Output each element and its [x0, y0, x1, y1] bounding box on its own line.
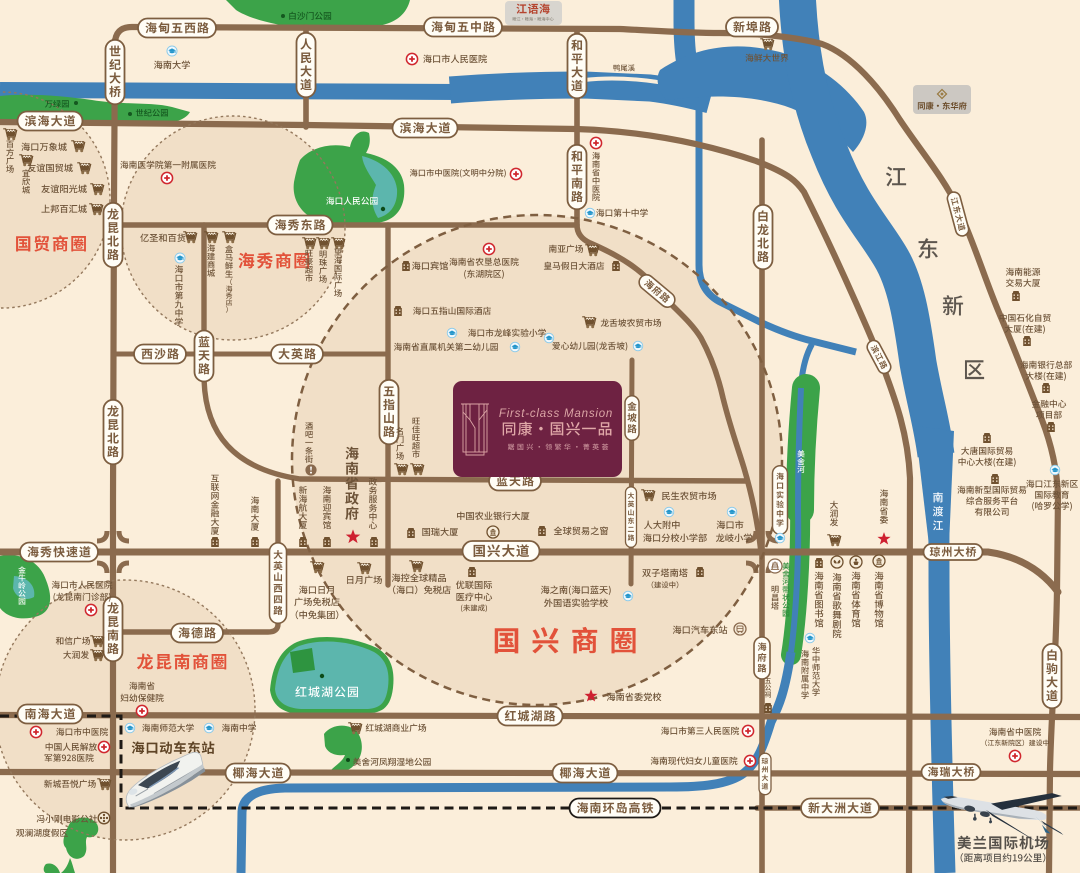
- svg-text:First-class Mansion: First-class Mansion: [499, 408, 613, 420]
